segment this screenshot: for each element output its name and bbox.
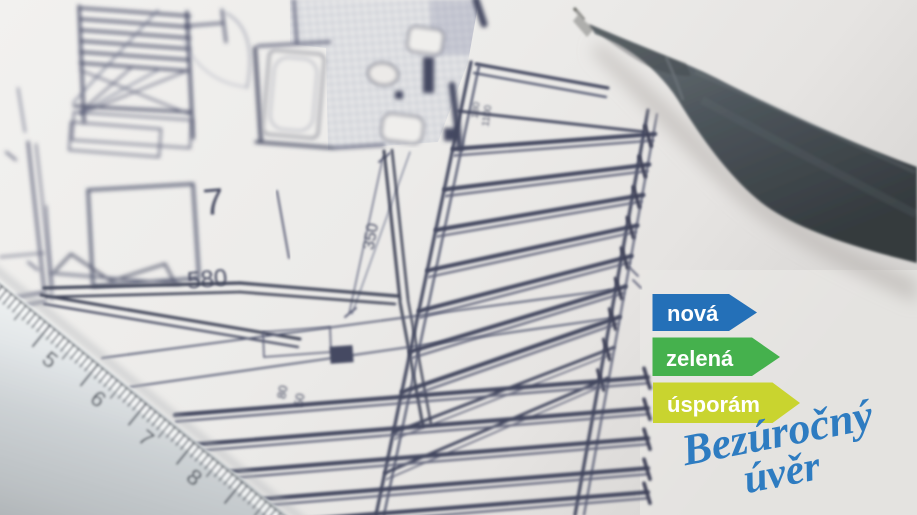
svg-text:580: 580	[186, 264, 228, 294]
svg-text:80: 80	[274, 384, 290, 400]
svg-text:zelená: zelená	[666, 346, 734, 371]
svg-text:nová: nová	[667, 301, 719, 326]
svg-text:7: 7	[201, 181, 225, 224]
